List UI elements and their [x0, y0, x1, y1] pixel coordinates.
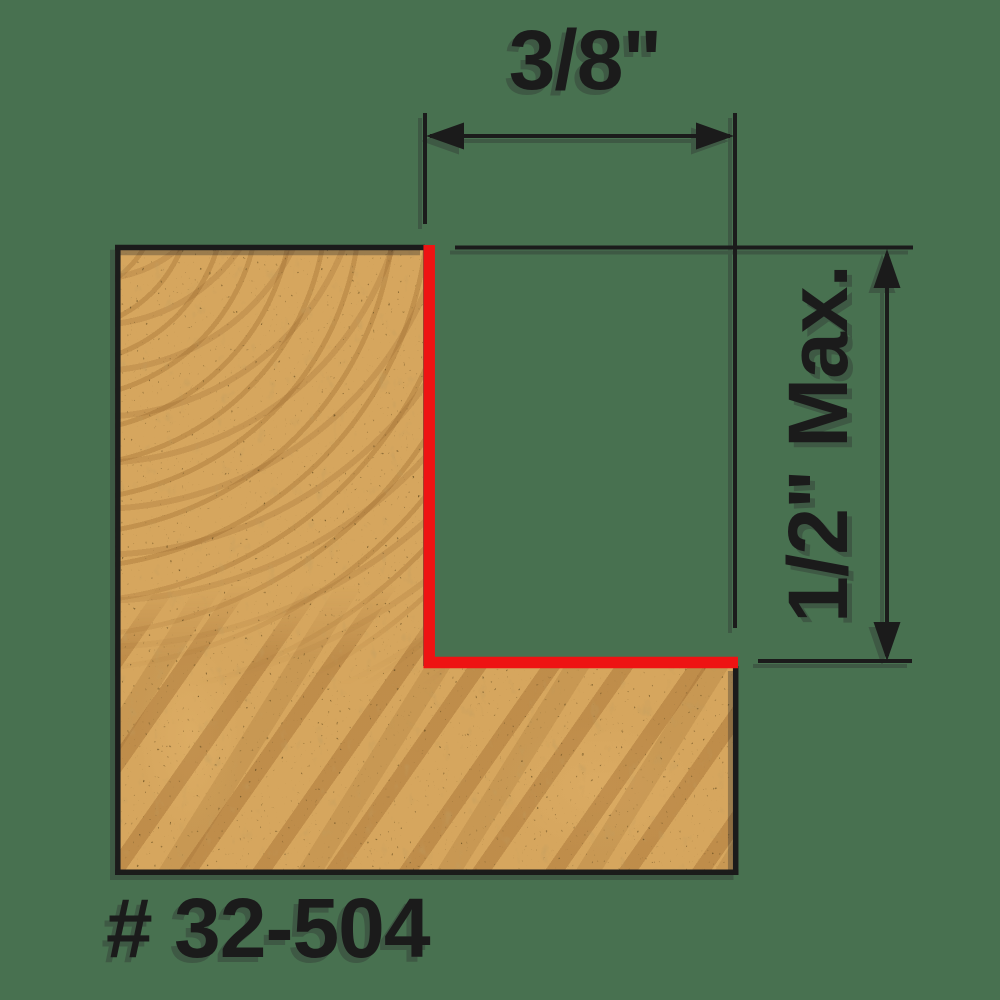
width-dimension-label: 3/8"	[405, 18, 765, 102]
cut-profile-line	[429, 245, 738, 663]
rabbet-profile-diagram: 3/8" 1/2" Max. # 32-504	[0, 0, 1000, 1000]
part-number-label: # 32-504	[106, 886, 430, 970]
depth-dimension-label: 1/2" Max.	[776, 244, 860, 644]
